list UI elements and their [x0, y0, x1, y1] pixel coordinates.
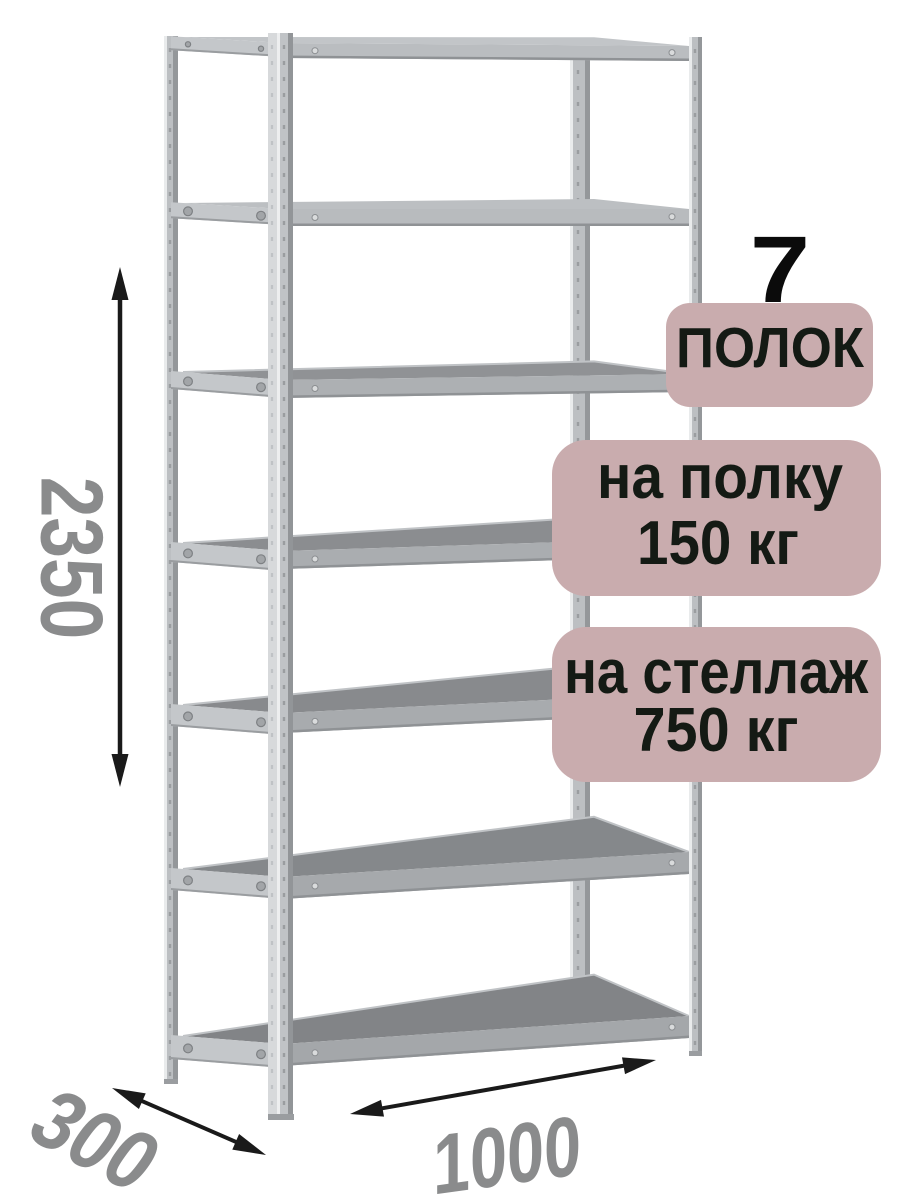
svg-text:750 кг: 750 кг — [634, 696, 799, 765]
svg-text:на полку: на полку — [597, 443, 843, 512]
svg-text:2350: 2350 — [22, 477, 120, 639]
svg-text:150 кг: 150 кг — [637, 509, 799, 578]
svg-text:ПОЛОК: ПОЛОК — [676, 316, 864, 380]
svg-text:300: 300 — [12, 1073, 178, 1200]
svg-text:1000: 1000 — [433, 1098, 581, 1200]
